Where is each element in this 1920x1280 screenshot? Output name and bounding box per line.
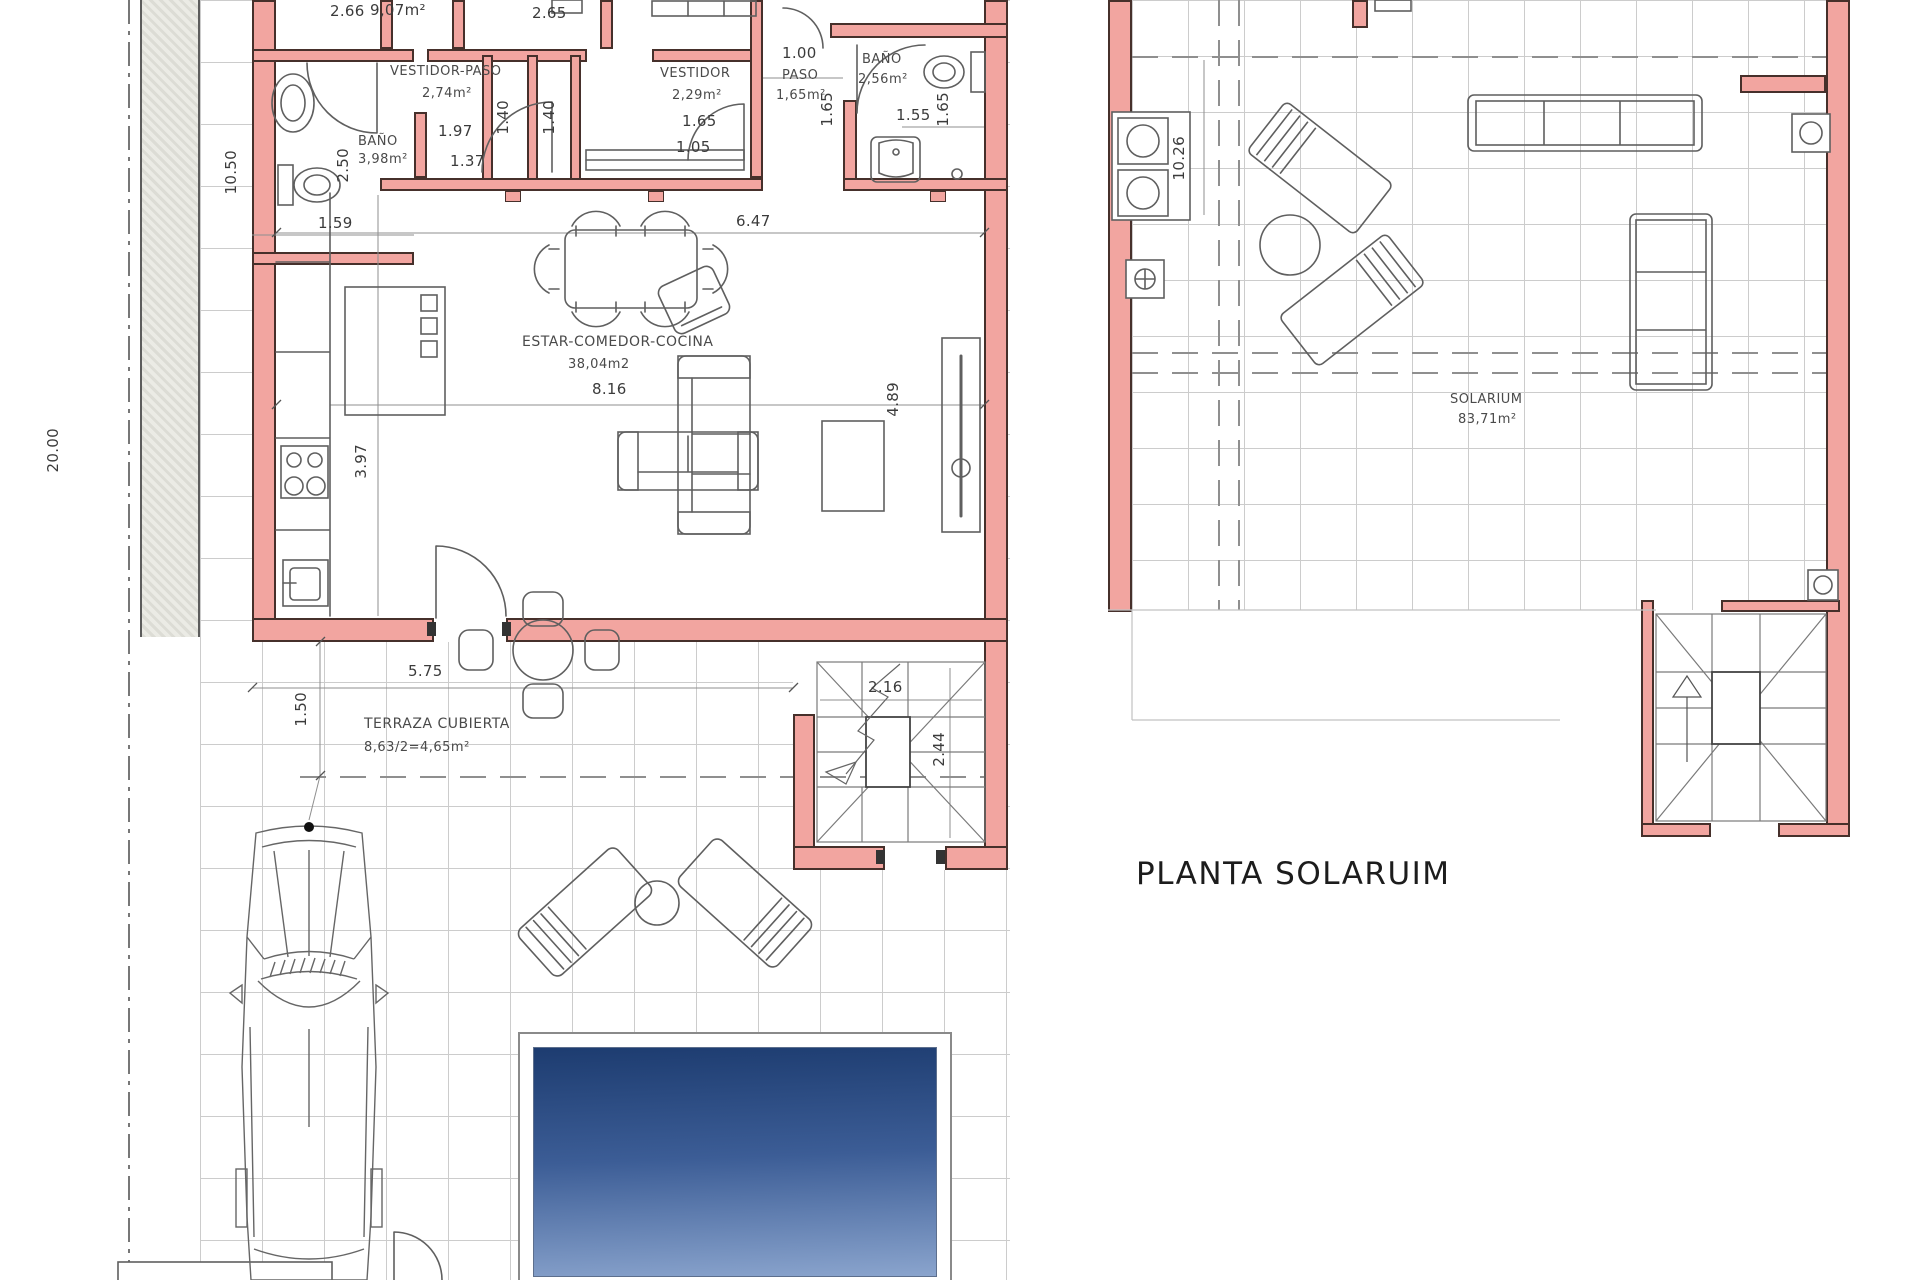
dim-plot-height: 20.00: [44, 428, 62, 472]
dim-bano2-width: 1.55: [896, 106, 931, 124]
room-area-bano2: 2,56m²: [858, 72, 908, 87]
plan-title: PLANTA SOLARUIM: [1136, 856, 1451, 892]
room-area-terraza: 8,63/2=4,65m²: [364, 740, 470, 755]
dim-living-width: 8.16: [592, 380, 627, 398]
door-arc: [436, 546, 506, 618]
room-area-solarium: 83,71m²: [1458, 412, 1517, 427]
dim-vestidorpaso-2: 1.37: [450, 152, 485, 170]
dim-vestidorpaso-1: 1.97: [438, 122, 473, 140]
dim-terraza-width: 5.75: [408, 662, 443, 680]
dimension-ticks: [248, 228, 989, 780]
dim-terraza-height: 1.50: [292, 692, 310, 727]
floor-plan-canvas: 2.66 9,07m² 2.65 1.00 BAÑO 3,98m² 2.50 1…: [0, 0, 1920, 1280]
dim-solarium-left-height: 10.26: [1170, 136, 1188, 180]
room-area-living: 38,04m2: [568, 357, 630, 372]
dim-vestidor-1: 1.65: [682, 112, 717, 130]
room-area-vestidor: 2,29m²: [672, 88, 722, 103]
dim-pasillo-1: 1.40: [494, 100, 512, 135]
dim-pasillo-2: 1.40: [540, 100, 558, 135]
room-area-vestidor-paso: 2,74m²: [422, 86, 472, 101]
dim-living-top: 6.47: [736, 212, 771, 230]
room-label-bano2: BAÑO: [862, 52, 902, 67]
solarium-furniture: [1112, 95, 1838, 600]
furniture-linework: [0, 0, 1920, 1280]
dim-paso-height: 1.65: [818, 92, 836, 127]
door-arc: [307, 63, 377, 133]
dim-bedroom1-width: 2.66: [330, 2, 365, 20]
up-arrow: [1673, 676, 1701, 762]
room-area-bano1: 3,98m²: [358, 152, 408, 167]
dim-bedroom2-width: 2.65: [532, 4, 567, 22]
room-label-paso: PASO: [782, 68, 818, 83]
dim-paso-top-width: 1.00: [782, 44, 817, 62]
dim-bano1-height: 2.50: [334, 148, 352, 183]
dim-kitchen-height: 3.97: [352, 444, 370, 479]
dim-stairs-height: 2.44: [930, 732, 948, 767]
dim-bano1-width: 1.59: [318, 214, 353, 232]
dim-left-height: 10.50: [222, 150, 240, 194]
dim-bedroom1-area: 9,07m²: [370, 1, 426, 19]
dim-stairs-width: 2.16: [868, 678, 903, 696]
dim-bano2-height: 1.65: [934, 92, 952, 127]
room-label-terraza: TERRAZA CUBIERTA: [364, 716, 510, 732]
stairs-solarium: [1108, 610, 1826, 821]
room-label-bano1: BAÑO: [358, 134, 398, 149]
dim-living-height: 4.89: [884, 382, 902, 417]
car-top-view: [230, 822, 388, 1280]
room-label-vestidor-paso: VESTIDOR-PASO: [390, 64, 501, 79]
room-label-living: ESTAR-COMEDOR-COCINA: [522, 334, 713, 350]
room-label-vestidor: VESTIDOR: [660, 66, 730, 81]
door-arc: [783, 8, 823, 48]
furniture: [118, 0, 1411, 1280]
door-arc: [394, 1232, 442, 1280]
dim-vestidor-2: 1.05: [676, 138, 711, 156]
room-label-solarium: SOLARIUM: [1450, 392, 1523, 407]
